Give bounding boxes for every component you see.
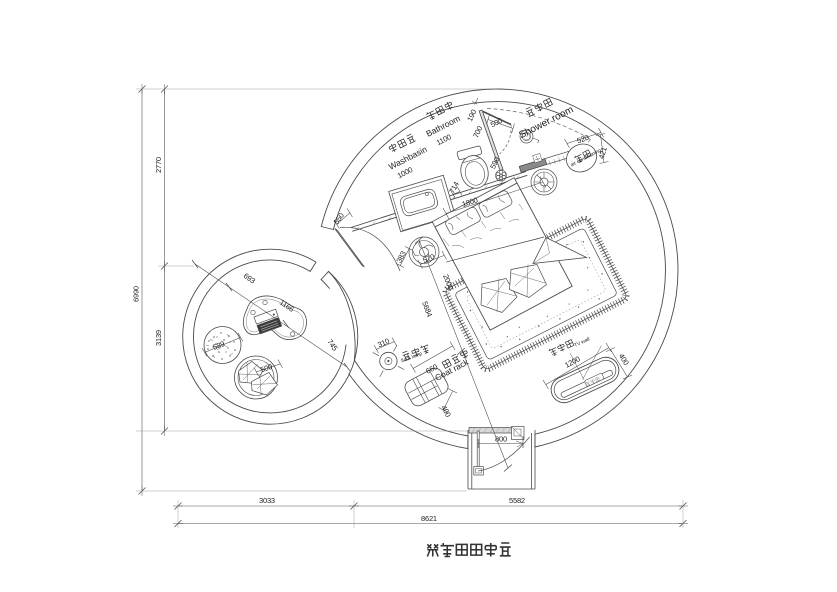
svg-text:Shower room: Shower room — [517, 104, 575, 141]
svg-text:2770: 2770 — [154, 157, 163, 173]
svg-text:3033: 3033 — [259, 496, 275, 505]
svg-text:3139: 3139 — [154, 330, 163, 346]
svg-text:190: 190 — [465, 108, 478, 123]
svg-text:520: 520 — [576, 133, 590, 146]
svg-text:6990: 6990 — [132, 286, 141, 302]
svg-text:700: 700 — [471, 125, 484, 140]
svg-text:550: 550 — [332, 211, 346, 226]
svg-text:693: 693 — [242, 271, 257, 285]
svg-text:1200: 1200 — [563, 354, 581, 369]
svg-text:TV wall: TV wall — [573, 336, 590, 348]
svg-text:500: 500 — [489, 116, 504, 129]
svg-text:2000: 2000 — [441, 273, 455, 291]
svg-text:5582: 5582 — [509, 496, 525, 505]
svg-text:400: 400 — [617, 352, 631, 367]
svg-text:400: 400 — [439, 404, 453, 419]
svg-text:745: 745 — [325, 337, 339, 352]
svg-text:1100: 1100 — [435, 132, 453, 147]
svg-text:5684: 5684 — [420, 300, 434, 318]
svg-text:310: 310 — [376, 336, 391, 349]
svg-text:570: 570 — [421, 252, 435, 265]
svg-text:8621: 8621 — [421, 514, 437, 523]
svg-text:383: 383 — [394, 250, 408, 265]
